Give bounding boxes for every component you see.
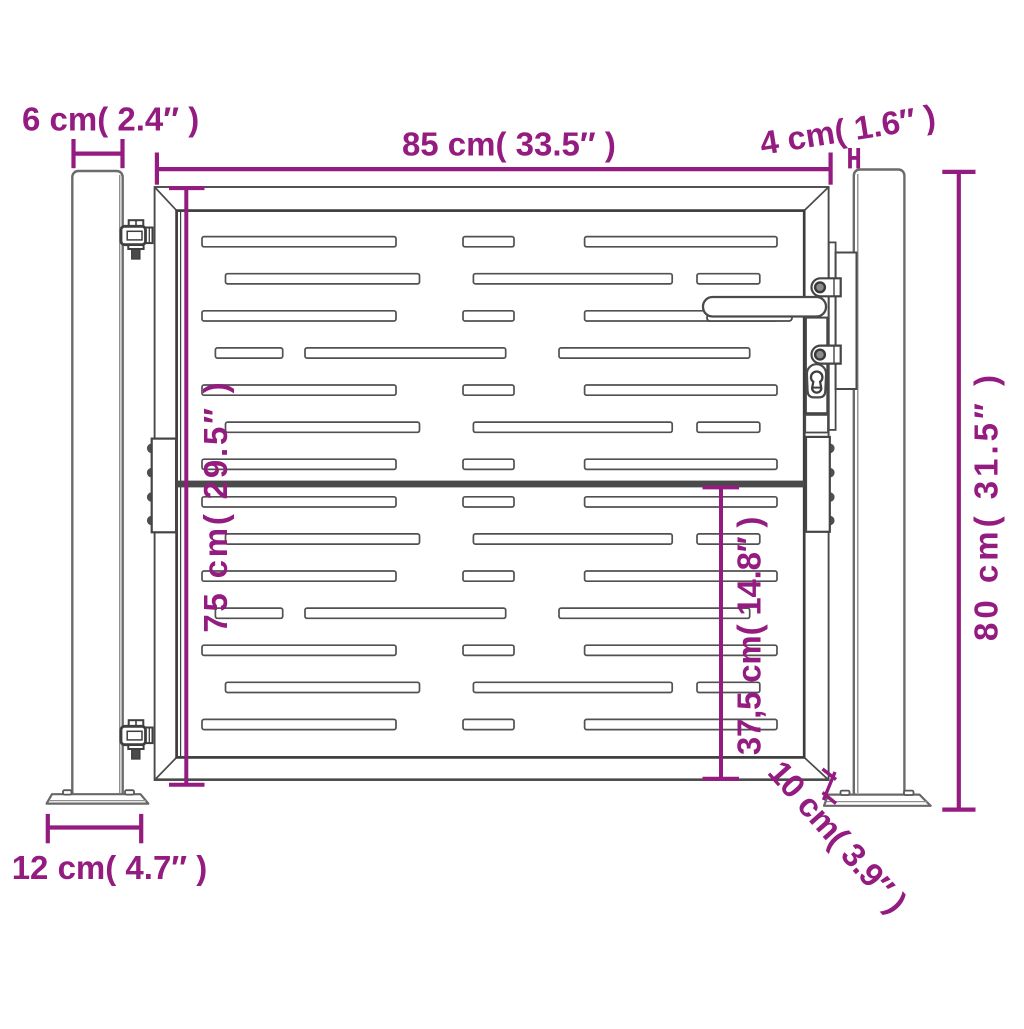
svg-text:80 cm( 31.5″ ): 80 cm( 31.5″ ) [968, 371, 1005, 641]
svg-text:12 cm( 4.7″ ): 12 cm( 4.7″ ) [12, 849, 208, 886]
svg-text:37,5 cm( 14.8″ ): 37,5 cm( 14.8″ ) [731, 517, 768, 755]
svg-text:6 cm( 2.4″ ): 6 cm( 2.4″ ) [22, 100, 199, 137]
svg-text:85 cm( 33.5″ ): 85 cm( 33.5″ ) [402, 126, 616, 163]
svg-text:75 cm( 29.5″ ): 75 cm( 29.5″ ) [197, 380, 234, 633]
